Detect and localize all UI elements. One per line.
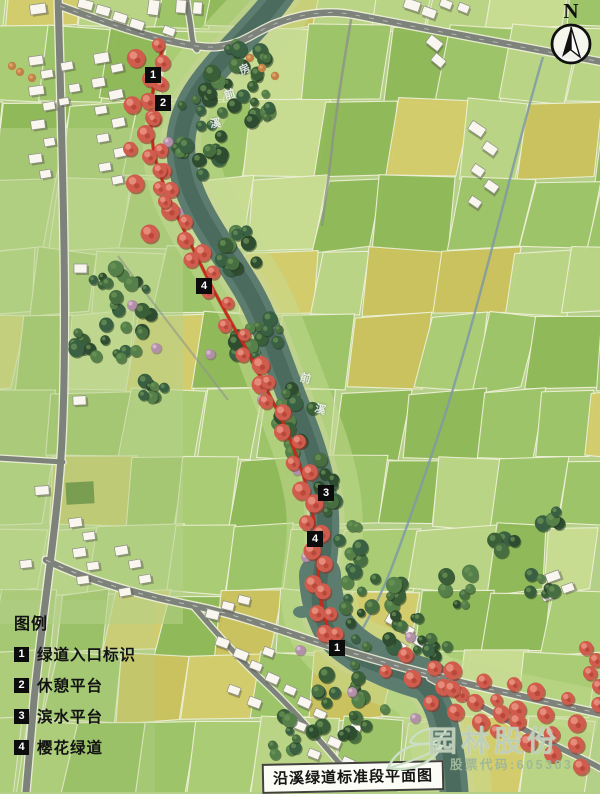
legend-label-cherry-greenway: 樱花绿道 <box>37 736 103 758</box>
legend-item-waterfront-platform: 3 滨水平台 <box>14 705 136 727</box>
compass-icon <box>549 22 593 66</box>
legend-num-4: 4 <box>14 740 29 755</box>
legend-label-entrance: 绿道入口标识 <box>37 643 136 665</box>
legend-item-entrance: 1 绿道入口标识 <box>14 643 136 665</box>
north-label: N <box>546 0 596 22</box>
map-marker-cherry-greenway-lower: 4 <box>307 531 323 547</box>
legend-label-waterfront-platform: 滨水平台 <box>37 705 103 727</box>
map-marker-rest-platform: 2 <box>155 95 171 111</box>
legend-label-rest-platform: 休憩平台 <box>37 674 103 696</box>
map-marker-entrance-top: 1 <box>145 67 161 83</box>
legend-item-rest-platform: 2 休憩平台 <box>14 674 136 696</box>
legend-title: 图例 <box>14 610 136 634</box>
drawing-title: 沿溪绿道标准段平面图 <box>262 760 445 794</box>
map-marker-waterfront-platform: 3 <box>318 485 334 501</box>
site-plan-page: { "north": { "label": "N" }, "legend": {… <box>0 0 600 792</box>
map-marker-entrance-bottom: 1 <box>329 640 345 656</box>
map-marker-cherry-greenway-upper: 4 <box>196 278 212 294</box>
legend: 图例 1 绿道入口标识 2 休憩平台 3 滨水平台 4 樱花绿道 <box>14 610 136 758</box>
north-arrow: N <box>546 0 596 66</box>
river-name-char: 溪 <box>209 114 222 131</box>
legend-num-3: 3 <box>14 709 29 724</box>
legend-item-cherry-greenway: 4 樱花绿道 <box>14 736 136 758</box>
legend-num-1: 1 <box>14 647 29 662</box>
legend-num-2: 2 <box>14 678 29 693</box>
